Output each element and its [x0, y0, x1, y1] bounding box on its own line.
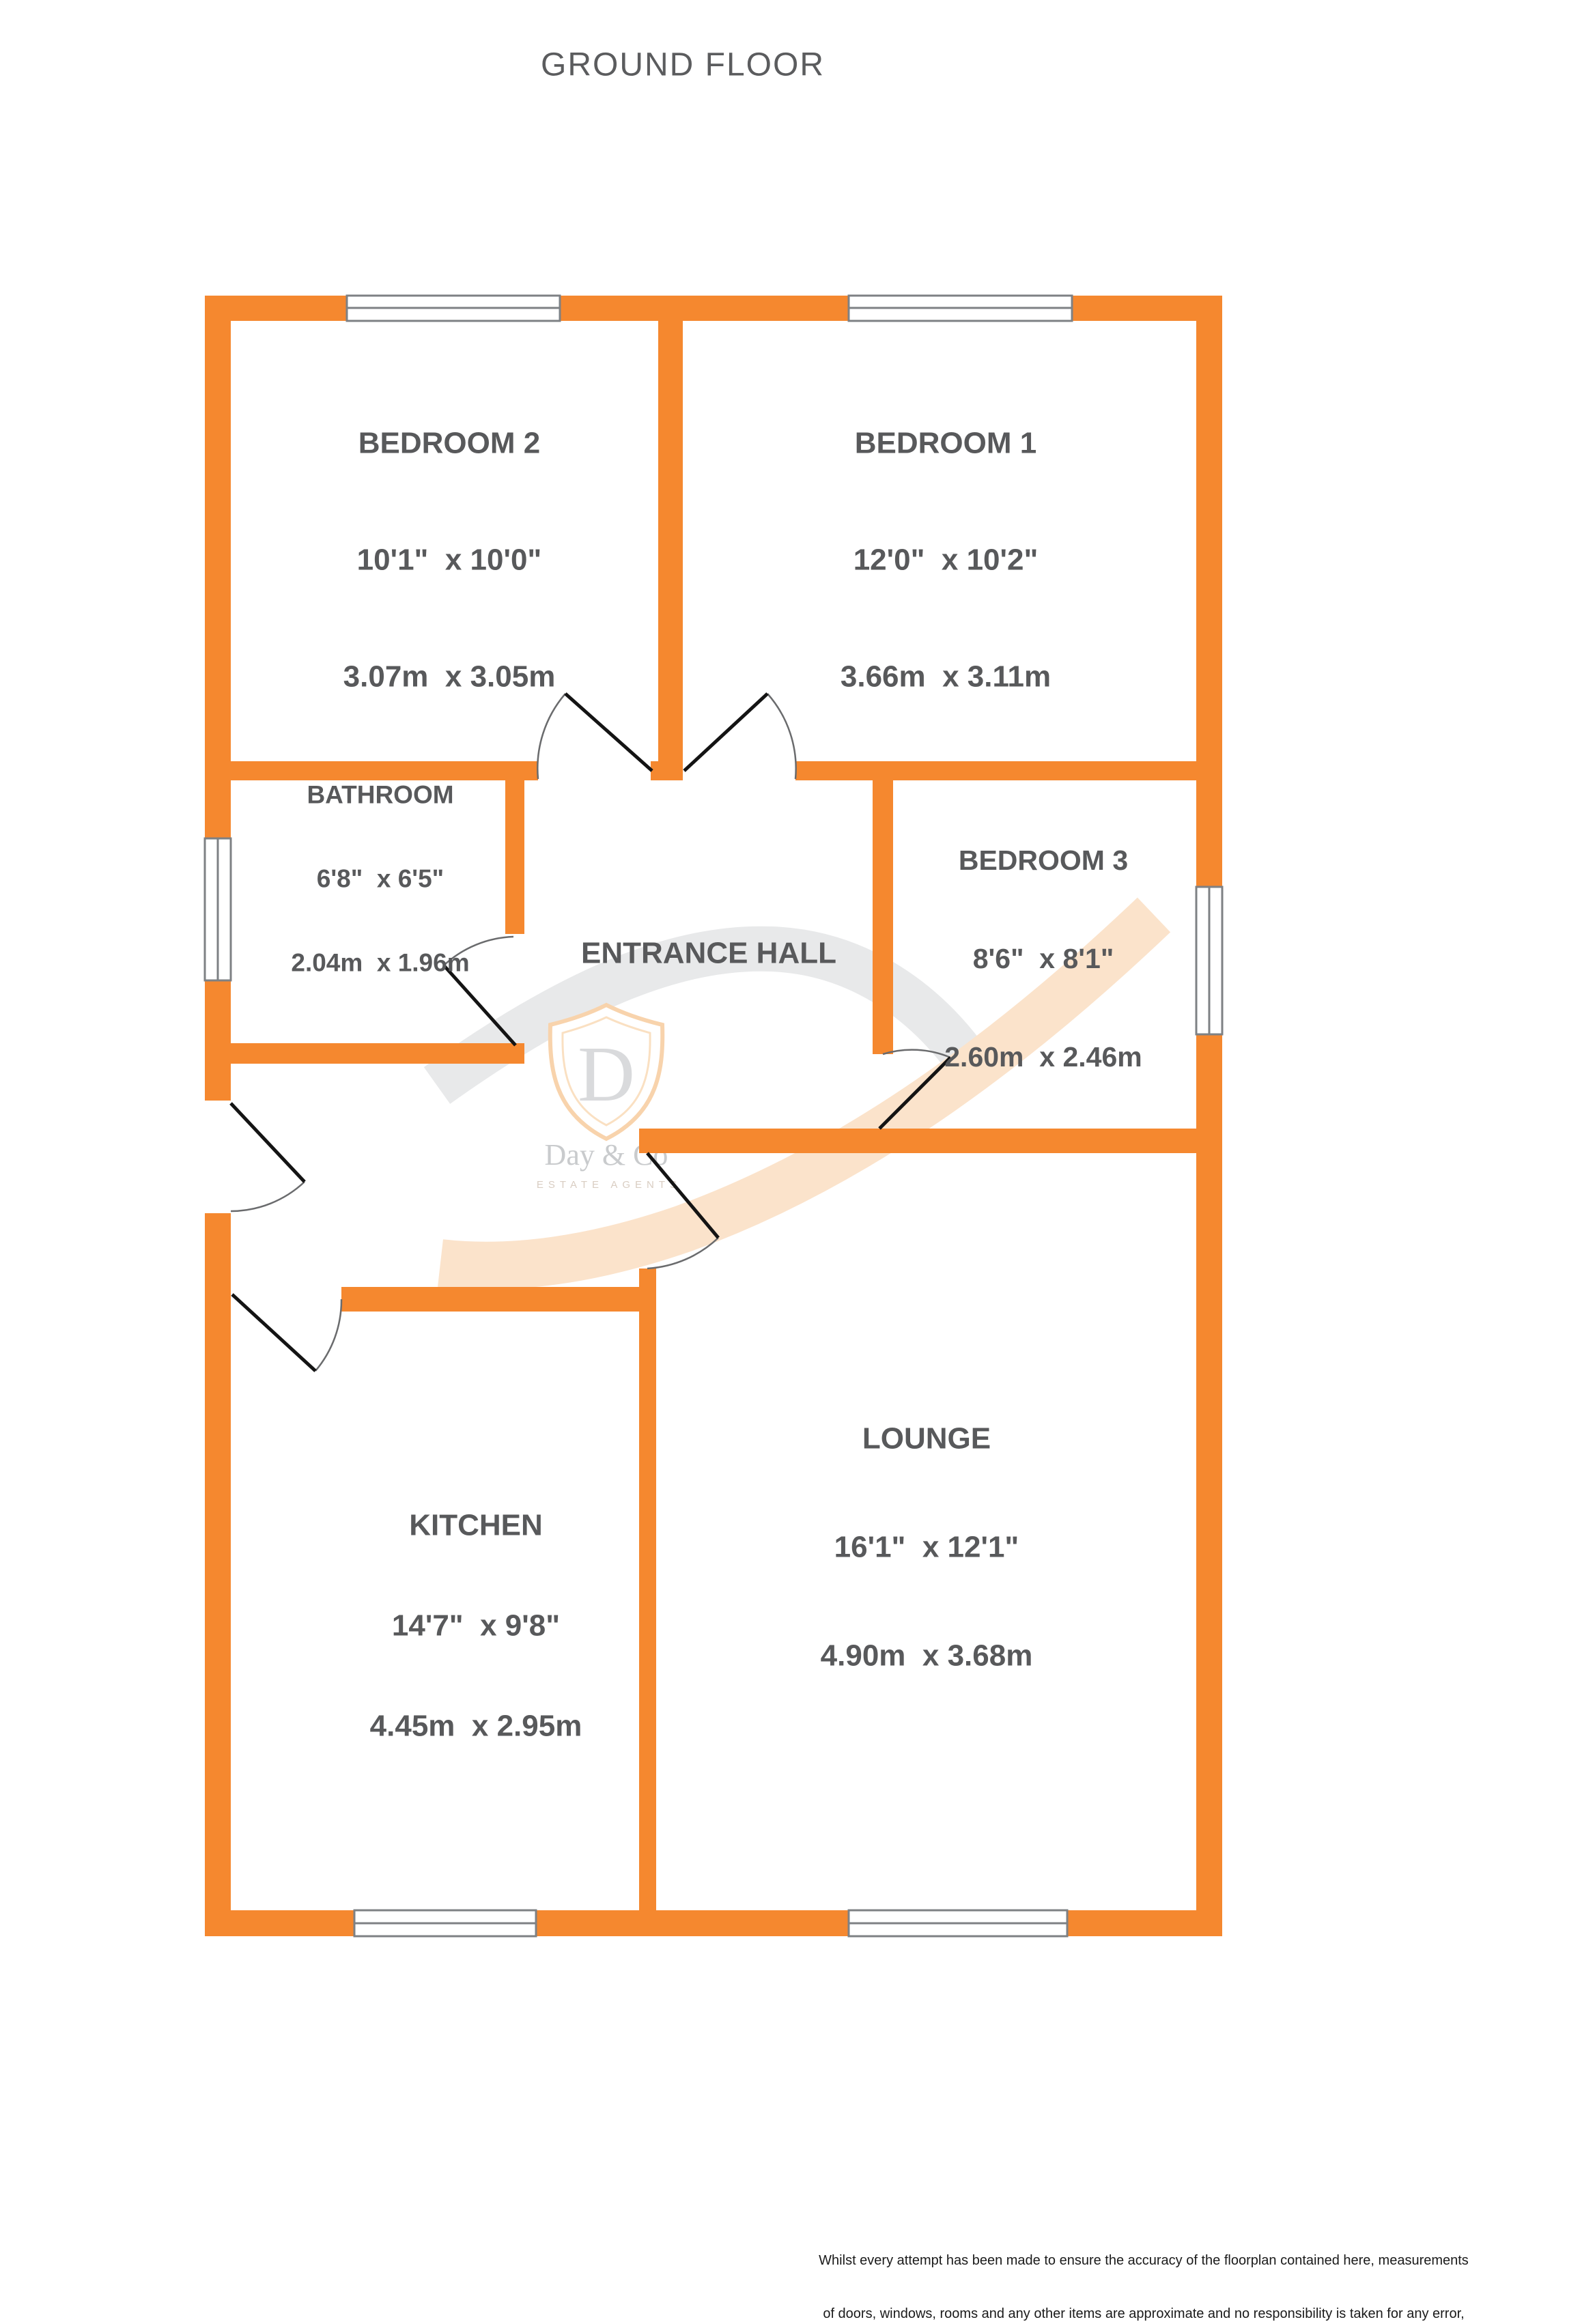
room-label-bedroom3: BEDROOM 3 8'6" x 8'1" 2.60m x 2.46m [944, 778, 1142, 1139]
room-label-bathroom: BATHROOM 6'8" x 6'5" 2.04m x 1.96m [291, 725, 469, 1033]
room-name: BEDROOM 1 [841, 424, 1051, 463]
door-front-entrance [231, 1103, 305, 1211]
wall-bedroom-divider-foot [651, 761, 683, 780]
room-label-bedroom2: BEDROOM 2 10'1" x 10'0" 3.07m x 3.05m [343, 346, 556, 774]
floorplan-page: D Day & Co ESTATE AGENTS [0, 0, 1595, 2324]
wall-exterior-left-mid [205, 980, 231, 1101]
room-dims-metric: 4.90m x 3.68m [821, 1638, 1033, 1674]
page-title: GROUND FLOOR [541, 46, 825, 84]
wall-bedroom3-left [873, 780, 893, 1054]
floorplan-drawing: D Day & Co ESTATE AGENTS [0, 0, 1595, 2324]
window-kitchen [354, 1910, 536, 1936]
window-bedroom3 [1196, 887, 1222, 1034]
room-dims-imperial: 6'8" x 6'5" [291, 865, 469, 893]
room-dims-imperial: 12'0" x 10'2" [841, 541, 1051, 580]
room-label-kitchen: KITCHEN 14'7" x 9'8" 4.45m x 2.95m [370, 1442, 582, 1810]
window-bedroom2 [347, 296, 560, 321]
room-dims-imperial: 10'1" x 10'0" [343, 541, 556, 580]
window-lounge [849, 1910, 1067, 1936]
room-dims-metric: 4.45m x 2.95m [370, 1710, 582, 1743]
room-name: BEDROOM 3 [944, 844, 1142, 877]
room-dims-metric: 3.66m x 3.11m [841, 657, 1051, 696]
wall-bathroom-bottom [231, 1043, 524, 1064]
disclaimer-text: Whilst every attempt has been made to en… [815, 2216, 1472, 2324]
room-dims-imperial: 8'6" x 8'1" [944, 942, 1142, 975]
room-name: BATHROOM [291, 781, 469, 809]
wall-bathroom-right [505, 780, 524, 934]
room-dims-imperial: 14'7" x 9'8" [370, 1609, 582, 1643]
room-label-entrance-hall: ENTRANCE HALL [581, 856, 836, 1051]
wall-exterior-left-upper [205, 296, 231, 838]
room-label-lounge: LOUNGE 16'1" x 12'1" 4.90m x 3.68m [821, 1348, 1033, 1746]
room-dims-metric: 3.07m x 3.05m [343, 657, 556, 696]
disclaimer-line: Whilst every attempt has been made to en… [815, 2252, 1472, 2269]
room-dims-imperial: 16'1" x 12'1" [821, 1529, 1033, 1565]
door-kitchen [232, 1294, 341, 1371]
watermark-tagline: ESTATE AGENTS [537, 1179, 681, 1191]
door-bedroom1 [684, 694, 796, 779]
wall-kitchen-top [341, 1287, 656, 1312]
room-name: LOUNGE [821, 1421, 1033, 1457]
room-dims-metric: 2.04m x 1.96m [291, 949, 469, 977]
wall-exterior-left-lower [205, 1213, 231, 1936]
room-name: KITCHEN [370, 1509, 582, 1542]
disclaimer-line: of doors, windows, rooms and any other i… [815, 2305, 1472, 2323]
wall-bedroom-divider [658, 321, 683, 780]
wall-kitchen-lounge-divider [639, 1269, 656, 1910]
room-label-bedroom1: BEDROOM 1 12'0" x 10'2" 3.66m x 3.11m [841, 346, 1051, 774]
window-bedroom1 [849, 296, 1072, 321]
window-bathroom [205, 838, 231, 980]
room-name: BEDROOM 2 [343, 424, 556, 463]
room-name: ENTRANCE HALL [581, 934, 836, 973]
room-dims-metric: 2.60m x 2.46m [944, 1040, 1142, 1073]
wall-exterior-right-upper [1196, 296, 1222, 887]
wall-exterior-right-lower [1196, 1034, 1222, 1936]
